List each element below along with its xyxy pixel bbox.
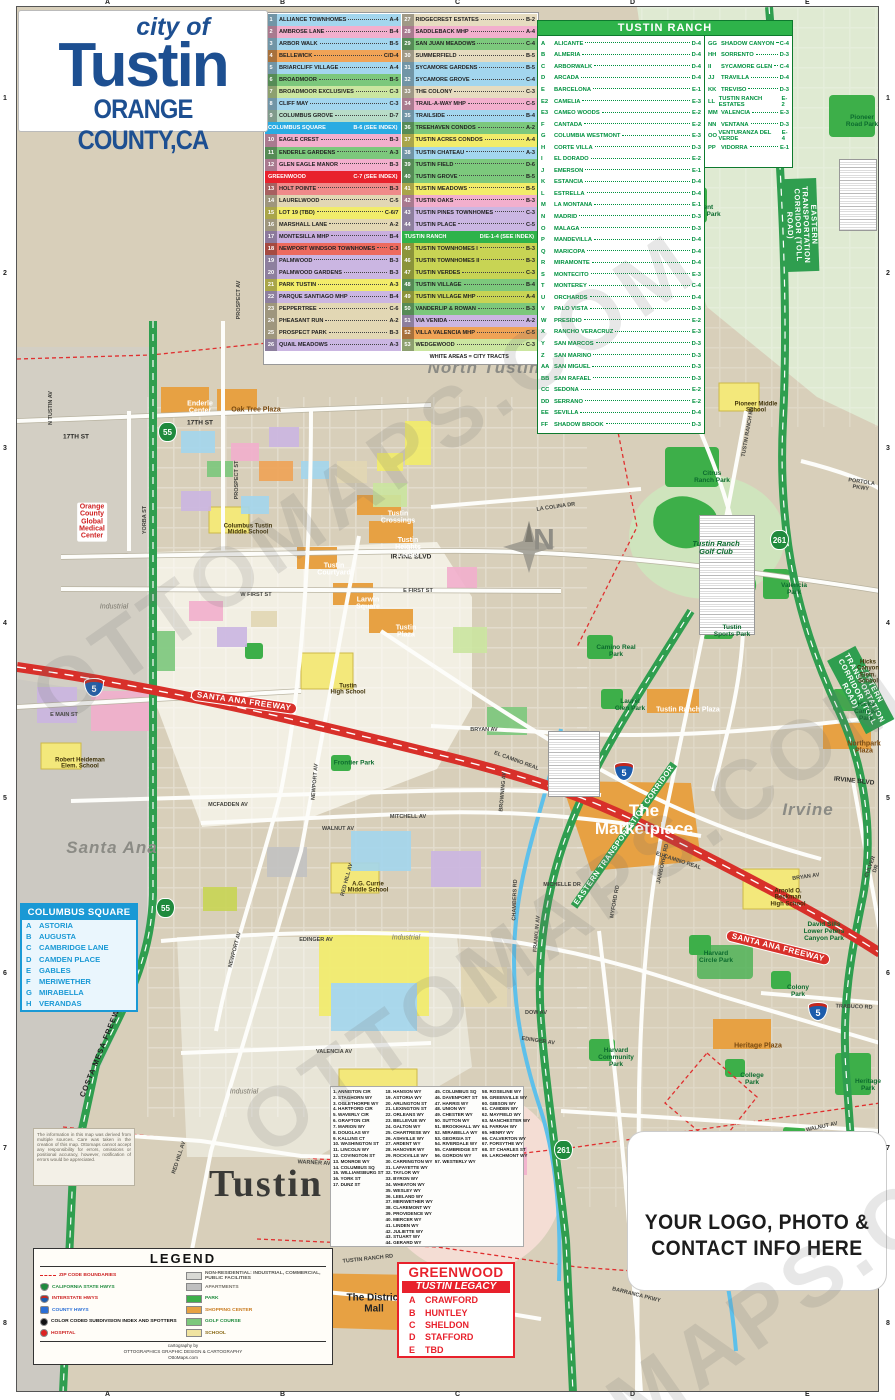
index-row: 51VIA VENIDAA-2 (402, 315, 538, 327)
index-row: 20PALMWOOD GARDENSB-3 (265, 267, 401, 279)
tustin-ranch-row: ZSAN MARINOD-3 (541, 350, 701, 362)
greenwood-row: ETBD (399, 1344, 513, 1356)
index-row: 15LOT 19 (TBD)C-6/7 (265, 207, 401, 219)
street-row: 57. WESTERLY WY (435, 1159, 480, 1165)
grid-number: 8 (3, 1320, 7, 1327)
greenwood-row: CSHELDON (399, 1319, 513, 1331)
spot-icon (40, 1318, 48, 1326)
tustin-ranch-row: CARBORWALKD-4 (541, 61, 701, 73)
index-row: 9COLUMBUS GROVED-7 (265, 110, 401, 122)
index-row: 44TUSTIN PLACEC-5 (402, 219, 538, 231)
index-row: 37TUSTIN ACRES CONDOSA-4 (402, 134, 538, 146)
tustin-ranch-col2: GGSHADOW CANYONC-4HHSORRENTOD-3IISYCAMOR… (705, 36, 793, 168)
legend-item: INTERSTATE HWYS (40, 1293, 180, 1305)
contact-line1: YOUR LOGO, PHOTO & (645, 1210, 870, 1236)
tustin-ranch-row: FFSHADOW BROOKD-3 (541, 419, 701, 431)
mini-street-list (548, 731, 600, 797)
index-row: 24PHEASANT RUNA-2 (265, 315, 401, 327)
tustin-ranch-row: KESTANCIAD-4 (541, 177, 701, 189)
index-row: 17MONTESILLA MHPB-4 (265, 231, 401, 243)
index-row: 7BROADMOOR EXCLUSIVESC-3 (265, 86, 401, 98)
grid-letter: E (805, 1391, 810, 1398)
index-row: 30SUMMERFIELDB-5 (402, 50, 538, 62)
legend-item: GOLF COURSE (186, 1316, 326, 1328)
tustin-ranch-row: LESTRELLAD-4 (541, 188, 701, 200)
tustin-ranch-row: AALICANTED-4 (541, 38, 701, 50)
tustin-ranch-row: NNVENTANAD-3 (708, 119, 789, 131)
greenwood-subtitle: TUSTIN LEGACY (402, 1281, 510, 1293)
street-row: 44. GERARD WY (386, 1240, 433, 1246)
apts-icon (186, 1283, 202, 1291)
nonres-icon (186, 1272, 202, 1280)
legend-item: CALIFORNIA STATE HWYS (40, 1282, 180, 1294)
index-row: 35TRAILSIDEB-4 (402, 110, 538, 122)
index-row: 6BROADMOORB-5 (265, 74, 401, 86)
index-row: 29SAN JUAN MEADOWSC-4 (402, 38, 538, 50)
index-row: 23PEPPERTREEC-6 (265, 303, 401, 315)
grid-number: 7 (3, 1145, 7, 1152)
shcty-icon (40, 1306, 49, 1314)
grid-number: 3 (3, 445, 7, 452)
legend-credit: cartography by OTTOGRAPHICS GRAPHIC DESI… (40, 1341, 326, 1361)
index-row: 12GLEN EAGLE MANORB-3 (265, 159, 401, 171)
city-title: Tustin (19, 42, 267, 90)
grid-number: 6 (3, 970, 7, 977)
zip-icon (40, 1275, 56, 1276)
subdivision-index: 1ALLIANCE TOWNHOMESA-42AMBROSE LANEB-43A… (263, 12, 539, 365)
tustin-ranch-row: MMVALENCIAE-3 (708, 107, 789, 119)
street-row: 51. BROOKHALL WY (435, 1124, 480, 1130)
shint-icon (40, 1295, 49, 1303)
grid-number: 1 (886, 95, 890, 102)
index-row: 38TUSTIN CHATEAUA-3 (402, 147, 538, 159)
street-row: 45. COLUMBUS SQ (435, 1089, 480, 1095)
street-row: 30. CARRINGTON WY (386, 1159, 433, 1165)
tustin-ranch-row: FCANTADAE-2 (541, 119, 701, 131)
street-row: 29. ROCKVILLE WY (386, 1153, 433, 1159)
legend-item: PARK (186, 1293, 326, 1305)
index-row: 49TUSTIN VILLAGE MHPA-4 (402, 291, 538, 303)
legend-item: SCHOOL (186, 1328, 326, 1340)
tustin-ranch-row: XRANCHO VERACRUZE-3 (541, 327, 701, 339)
subdivision-index-col1: 1ALLIANCE TOWNHOMESA-42AMBROSE LANEB-43A… (265, 14, 401, 363)
hosp-icon (40, 1329, 48, 1337)
index-row: 11ENDERLE GARDENSA-3 (265, 147, 401, 159)
grid-number: 5 (886, 795, 890, 802)
street-row: 59. GREENVILLE WY (482, 1095, 530, 1101)
index-row: 28SADDLEBACK MHPA-4 (402, 26, 538, 38)
index-row: 50VANDERLIP & ROWANB-3 (402, 303, 538, 315)
index-row: 53WEDGEWOODC-3 (402, 339, 538, 351)
grid-number: 1 (3, 95, 7, 102)
legend: LEGEND ZIP CODE BOUNDARIESCALIFORNIA STA… (33, 1248, 333, 1365)
tustin-ranch-row: SMONTECITOE-3 (541, 269, 701, 281)
tustin-ranch-row: GCOLUMBIA WESTMONTE-3 (541, 130, 701, 142)
tustin-ranch-row: NMADRIDD-3 (541, 211, 701, 223)
index-row-special: TUSTIN RANCHD/E-1-4 (SEE INDEX) (402, 231, 538, 243)
tustin-ranch-row: E3CAMEO WOODSE-2 (541, 107, 701, 119)
columbus-square-row: GMIRABELLA (22, 987, 136, 998)
index-row: 33THE COLONYC-3 (402, 86, 538, 98)
grid-letter: E (805, 0, 810, 6)
columbus-square-row: FMERIWETHER (22, 976, 136, 987)
index-row: 10EAGLE CRESTB-3 (265, 134, 401, 146)
index-row: 32SYCAMORE GROVEC-4 (402, 74, 538, 86)
map-sheet: OTTOMAPS.COM OTTOMAPS.COM OTTOMAPS.COM N… (0, 0, 895, 1400)
columbus-square-row: EGABLES (22, 965, 136, 976)
greenwood-row: BHUNTLEY (399, 1306, 513, 1318)
mini-street-list (839, 159, 877, 231)
grid-number: 2 (3, 270, 7, 277)
grid-number: 7 (886, 1145, 890, 1152)
tustin-ranch-row: E2CAMELIAE-3 (541, 96, 701, 108)
index-row: 4BELLEWICKC/D-4 (265, 50, 401, 62)
disclaimer-note: The information in this map was derived … (33, 1128, 135, 1186)
tustin-ranch-row: AASAN MIGUELD-3 (541, 361, 701, 373)
index-row: 2AMBROSE LANEB-4 (265, 26, 401, 38)
legend-item: ZIP CODE BOUNDARIES (40, 1270, 180, 1282)
legend-item: COLOR CODED SUBDIVISION INDEX AND SPOTTE… (40, 1316, 180, 1328)
index-row: 22PARQUE SANTIAGO MHPB-4 (265, 291, 401, 303)
shst-icon (40, 1283, 49, 1291)
index-row: 8CLIFF MAYC-3 (265, 98, 401, 110)
index-row: 13HOLT POINTEB-3 (265, 183, 401, 195)
index-row: 16MARSHALL LANEA-2 (265, 219, 401, 231)
street-row: 69. LARCHMONT WY (482, 1153, 530, 1159)
tustin-ranch-row: UORCHARDSD-4 (541, 292, 701, 304)
schl-icon (186, 1329, 202, 1337)
grid-letter: A (105, 0, 110, 6)
grid-letter: D (630, 1391, 635, 1398)
grid-number: 2 (886, 270, 890, 277)
grid-letter: B (280, 1391, 285, 1398)
tustin-ranch-row: MLA MONTANAE-1 (541, 200, 701, 212)
tustin-ranch-index: TUSTIN RANCH AALICANTED-4BALMERIAD-4CARB… (537, 20, 793, 434)
tustin-ranch-row: BBSAN RAFAELD-3 (541, 373, 701, 385)
index-row: 31SYCAMORE GARDENSB-5 (402, 62, 538, 74)
index-row: 36TREEHAVEN CONDOSA-2 (402, 122, 538, 134)
index-row: 45TUSTIN TOWNHOMES IB-3 (402, 243, 538, 255)
title-card: city of Tustin ORANGE COUNTY,CA (18, 10, 268, 132)
tustin-ranch-col1: AALICANTED-4BALMERIAD-4CARBORWALKD-4DARC… (537, 36, 705, 434)
index-row: 1ALLIANCE TOWNHOMESA-4 (265, 14, 401, 26)
tustin-ranch-row: HHSORRENTOD-3 (708, 50, 789, 62)
index-row: 27RIDGECREST ESTATESB-2 (402, 14, 538, 26)
street-index: 1. ANNISTON CIR2. STAGHORN WY3. OGLETHOR… (330, 1086, 524, 1247)
index-row: 3ARBOR WALKB-5 (265, 38, 401, 50)
columbus-square-row: BAUGUSTA (22, 931, 136, 942)
index-row: 21PARK TUSTINA-3 (265, 279, 401, 291)
street-row: 46. DAVENPORT ST (435, 1095, 480, 1101)
index-row: 25PROSPECT PARKB-3 (265, 327, 401, 339)
grid-letter: A (105, 1391, 110, 1398)
tustin-ranch-row: DARCADAD-4 (541, 73, 701, 85)
index-row: 39TUSTIN FIELDD-6 (402, 159, 538, 171)
grid-letter: D (630, 0, 635, 6)
index-row: 34TRAIL-A-WAY MHPC-5 (402, 98, 538, 110)
tustin-ranch-row: OOVENTURANZA DEL VERDEE-4 (708, 130, 789, 142)
tustin-ranch-title: TUSTIN RANCH (537, 20, 793, 36)
tustin-ranch-row: BALMERIAD-4 (541, 50, 701, 62)
tustin-ranch-row: JEMERSONE-1 (541, 165, 701, 177)
tustin-ranch-row: IISYCAMORE GLENC-4 (708, 61, 789, 73)
tustin-ranch-row: EESEVILLAD-4 (541, 408, 701, 420)
tustin-ranch-row: CCSEDONAE-2 (541, 384, 701, 396)
index-row: 52VILLA VALENCIA MHPC-5 (402, 327, 538, 339)
tustin-ranch-row: WPRESIDIOE-2 (541, 315, 701, 327)
tustin-ranch-row: HCORTE VILLAD-3 (541, 142, 701, 154)
legend-item: SHOPPING CENTER (186, 1305, 326, 1317)
tustin-ranch-row: PMANDEVILLAD-4 (541, 234, 701, 246)
contact-line2: CONTACT INFO HERE (651, 1236, 862, 1262)
grid-number: 8 (886, 1320, 890, 1327)
park-icon (186, 1295, 202, 1303)
grid-number: 6 (886, 970, 890, 977)
greenwood-index: GREENWOOD TUSTIN LEGACY ACRAWFORDBHUNTLE… (397, 1262, 515, 1358)
grid-number: 3 (886, 445, 890, 452)
columbus-square-row: HVERANDAS (22, 998, 136, 1009)
legend-item: APARTMENTS (186, 1282, 326, 1294)
greenwood-row: ACRAWFORD (399, 1294, 513, 1306)
index-row-special: GREENWOODC-7 (SEE INDEX) (265, 171, 401, 183)
mini-street-list (699, 515, 755, 635)
columbus-square-title: COLUMBUS SQUARE (22, 905, 136, 920)
grid-number: 4 (3, 620, 7, 627)
county-title: ORANGE COUNTY,CA (34, 94, 252, 156)
contact-placeholder: YOUR LOGO, PHOTO & CONTACT INFO HERE (628, 1132, 886, 1290)
tustin-ranch-row: PPVIDORRAE-1 (708, 142, 789, 154)
tustin-ranch-row: JJTRAVILLAD-4 (708, 73, 789, 85)
index-row: 40TUSTIN GROVEB-5 (402, 171, 538, 183)
grid-letter: C (455, 0, 460, 6)
index-row: 48TUSTIN VILLAGEB-4 (402, 279, 538, 291)
legend-item: COUNTY HWYS (40, 1305, 180, 1317)
tustin-ranch-row: RMIRAMONTED-4 (541, 257, 701, 269)
greenwood-row: DSTAFFORD (399, 1331, 513, 1343)
grid-number: 4 (886, 620, 890, 627)
index-row: 46TUSTIN TOWNHOMES IIB-3 (402, 255, 538, 267)
subdivision-index-col2: 27RIDGECREST ESTATESB-228SADDLEBACK MHPA… (402, 14, 538, 363)
legend-item: HOSPITAL (40, 1328, 180, 1340)
grid-letter: B (280, 0, 285, 6)
shop-icon (186, 1306, 202, 1314)
street-row: 17. DUNZ ST (333, 1182, 384, 1188)
columbus-square-row: AASTORIA (22, 920, 136, 931)
index-row: 14LAURELWOODC-5 (265, 195, 401, 207)
greenwood-title: GREENWOOD (399, 1265, 513, 1280)
grid-number: 5 (3, 795, 7, 802)
tustin-ranch-row: DDSERRANOE-2 (541, 396, 701, 408)
tustin-ranch-row: YSAN MARCOSD-3 (541, 338, 701, 350)
tustin-ranch-row: OMALAGAD-3 (541, 223, 701, 235)
index-footer: WHITE AREAS = CITY TRACTS (402, 351, 538, 363)
columbus-square-row: CCAMBRIDGE LANE (22, 942, 136, 953)
tustin-ranch-row: IEL DORADOE-2 (541, 153, 701, 165)
index-row: 5BRIARCLIFF VILLAGEA-4 (265, 62, 401, 74)
index-row: 42TUSTIN OAKSB-3 (402, 195, 538, 207)
tustin-ranch-row: VPALO VISTAD-3 (541, 304, 701, 316)
tustin-ranch-row: GGSHADOW CANYONC-4 (708, 38, 789, 50)
street-row: 25. CHARTRESE WY (386, 1130, 433, 1136)
index-row: 47TUSTIN VERDESC-3 (402, 267, 538, 279)
tustin-ranch-row: QMARICOPAD-4 (541, 246, 701, 258)
tustin-ranch-row: TMONTEREYC-4 (541, 280, 701, 292)
tustin-ranch-row: LLTUSTIN RANCH ESTATESE-2 (708, 96, 789, 108)
index-row: 41TUSTIN MEADOWSB-5 (402, 183, 538, 195)
columbus-square-index: COLUMBUS SQUARE AASTORIABAUGUSTACCAMBRID… (20, 903, 138, 1012)
street-row: 52. MIRABELLA WY (435, 1130, 480, 1136)
index-row: 19PALMWOODB-3 (265, 255, 401, 267)
golf-icon (186, 1318, 202, 1326)
index-row: 18NEWPORT WINDSOR TOWNHOMESC-3 (265, 243, 401, 255)
legend-item: NON-RESIDENTIAL: INDUSTRIAL, COMMERCIAL,… (186, 1270, 326, 1282)
index-row-special: COLUMBUS SQUAREB-6 (SEE INDEX) (265, 122, 401, 134)
index-row: 26QUAIL MEADOWSA-3 (265, 339, 401, 351)
tustin-ranch-row: EBARCELONAE-1 (541, 84, 701, 96)
legend-title: LEGEND (40, 1251, 326, 1267)
columbus-square-row: DCAMDEN PLACE (22, 954, 136, 965)
grid-letter: C (455, 1391, 460, 1398)
tustin-ranch-row: KKTREVISOD-3 (708, 84, 789, 96)
index-row: 43TUSTIN PINES TOWNHOMESC-3 (402, 207, 538, 219)
